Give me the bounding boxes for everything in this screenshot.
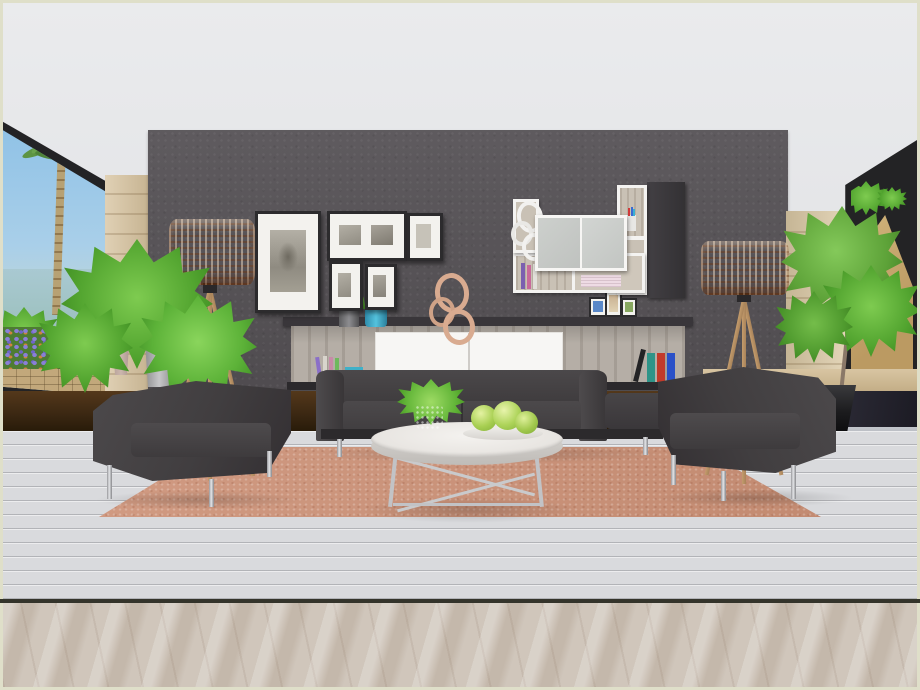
loveseat-right-shadow: [658, 489, 853, 507]
door-panel: [582, 218, 624, 268]
console-photo-frames: [589, 291, 645, 321]
photo: [416, 224, 431, 248]
scene: @: [3, 3, 917, 599]
preview-image: @: [0, 0, 920, 690]
binder: [657, 353, 665, 382]
chair-leg: [209, 479, 214, 507]
small-frame: [621, 298, 637, 317]
sofa-leg: [643, 437, 648, 455]
pot-teal: [365, 307, 387, 327]
chair-leg: [671, 455, 676, 485]
binder: [647, 353, 655, 382]
shelf-book: [527, 265, 531, 289]
pencil-cup: [627, 215, 636, 231]
chair-leg: [107, 465, 112, 499]
table-bottom-rail: [393, 503, 541, 506]
chair-leg: [791, 465, 796, 499]
door-panel: [538, 218, 580, 268]
shelf-book: [521, 263, 525, 289]
paper-stack: [581, 275, 621, 287]
gallery-frame-large: [255, 211, 321, 313]
binder: [667, 353, 675, 382]
gallery-frame-small-2: [329, 261, 363, 311]
photo: [371, 225, 393, 245]
chair-leg: [267, 451, 272, 477]
table-plant-pot: [415, 405, 443, 431]
gallery-frame-wide: [327, 211, 407, 261]
elephant-photo: [270, 230, 306, 292]
seat-cushion: [670, 413, 800, 449]
pot-gray: [339, 309, 359, 327]
loveseat-left-shadow: [95, 491, 300, 509]
loveseat-right: [658, 367, 836, 473]
apple: [515, 411, 538, 434]
seat-cushion: [131, 423, 271, 457]
floor-lamp-right-shade: [701, 241, 789, 295]
photo: [338, 273, 351, 297]
wall-unit-doors: [535, 215, 627, 271]
photo: [339, 225, 361, 245]
sofa-leg: [337, 439, 342, 457]
marble-banner: Living Grace Ung999: [3, 603, 917, 687]
wall-unit-dark-panel: [647, 182, 685, 298]
ring-sculpture-bronze: [427, 273, 477, 337]
sofa-chaise: [605, 393, 665, 429]
loveseat-left: [93, 381, 291, 481]
gallery-frame-small-3: [365, 264, 397, 310]
chair-leg: [721, 471, 726, 501]
photo: [373, 275, 386, 297]
gallery-frame-small-1: [407, 213, 443, 261]
